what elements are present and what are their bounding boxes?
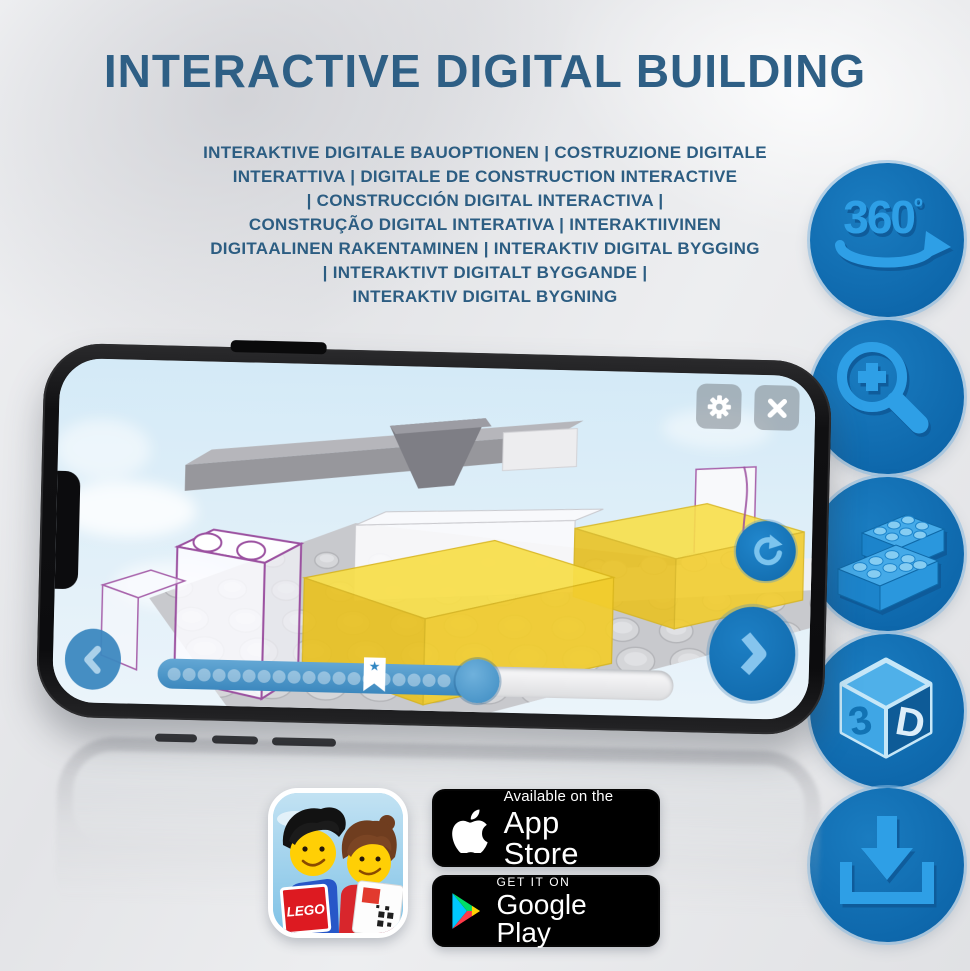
frame-slot (155, 733, 197, 742)
chevron-right-icon (718, 616, 786, 692)
subtitle-line: INTERAKTIVE DIGITALE BAUOPTIONEN | COSTR… (70, 141, 900, 165)
app-store-name: App Store (504, 807, 642, 869)
google-play-name: Google Play (496, 891, 642, 947)
page-title: INTERACTIVE DIGITAL BUILDING (0, 44, 970, 98)
app-store-tagline: Available on the (504, 788, 642, 805)
google-play-logo-icon (450, 891, 482, 931)
app-store-badge[interactable]: Available on the App Store (432, 789, 660, 867)
lego-app-artwork: LEGO (273, 793, 403, 933)
close-button[interactable] (754, 385, 800, 431)
360-rotation-icon: 360º (810, 163, 964, 317)
3d-cube-icon: 3 D (810, 634, 964, 788)
poster: INTERACTIVE DIGITAL BUILDING INTERAKTIVE… (0, 0, 970, 971)
subtitle-line: INTERAKTIV DIGITAL BYGNING (70, 285, 900, 309)
phone-notch (53, 471, 81, 590)
svg-text:360º: 360º (843, 191, 923, 243)
gear-icon (703, 391, 734, 422)
lego-app-icon[interactable]: LEGO (268, 788, 408, 938)
apple-logo-icon (450, 803, 490, 853)
feature-360-rotation: 360º (810, 163, 964, 317)
frame-slot (212, 735, 258, 744)
rotate-icon (743, 529, 788, 574)
feature-3d-view: 3 D (810, 634, 964, 788)
subtitle-line: | CONSTRUCCIÓN DIGITAL INTERACTIVA | (70, 189, 900, 213)
multilingual-subtitle: INTERAKTIVE DIGITALE BAUOPTIONEN | COSTR… (70, 141, 900, 309)
download-icon (810, 788, 964, 942)
subtitle-line: DIGITAALINEN RAKENTAMINEN | INTERAKTIV D… (70, 237, 900, 261)
grey-block (503, 427, 578, 473)
frame-slot (272, 737, 336, 747)
subtitle-line: | INTERAKTIVT DIGITALT BYGGANDE | (70, 261, 900, 285)
google-play-badge[interactable]: GET IT ON Google Play (432, 875, 660, 947)
feature-brick-building (810, 477, 964, 631)
qr-card (352, 881, 403, 933)
phone-screen: ★ (52, 358, 816, 720)
next-step-button[interactable] (708, 606, 796, 702)
chevron-left-icon (71, 636, 114, 683)
phone-power-button (231, 340, 327, 354)
zoom-in-icon (810, 320, 964, 474)
phone-mockup: ★ (36, 342, 833, 735)
subtitle-line: CONSTRUÇÃO DIGITAL INTERATIVA | INTERAKT… (70, 213, 900, 237)
lego-logo: LEGO (281, 885, 330, 933)
close-icon (762, 393, 791, 422)
settings-button[interactable] (696, 383, 742, 429)
previous-step-button[interactable] (64, 628, 121, 690)
cube-d-label: D (892, 699, 928, 747)
google-play-tagline: GET IT ON (496, 875, 642, 889)
lego-brick-icon (810, 477, 964, 631)
progress-dots (167, 667, 450, 687)
feature-download (810, 788, 964, 942)
feature-zoom (810, 320, 964, 474)
360-label: 360 (843, 191, 914, 243)
subtitle-line: INTERATTIVA | DIGITALE DE CONSTRUCTION I… (70, 165, 900, 189)
